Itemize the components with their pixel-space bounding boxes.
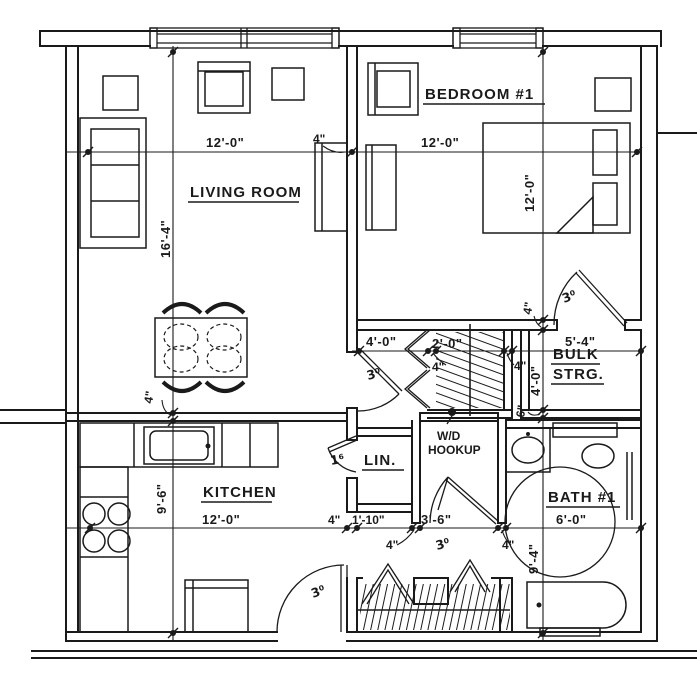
wall-4in-lin-right: 4" bbox=[386, 538, 398, 552]
bed bbox=[483, 123, 630, 233]
nightstand bbox=[595, 78, 631, 111]
bottom-closet-hatch bbox=[357, 584, 510, 630]
kitchen-sink bbox=[144, 427, 214, 464]
wall-4in-bath: 4" bbox=[502, 538, 514, 552]
wall-4in-bedroom: 4" bbox=[520, 301, 536, 316]
room-labels: LIVING ROOM BEDROOM #1 KITCHEN BATH #1 B… bbox=[188, 86, 620, 507]
kitchen-label: KITCHEN bbox=[203, 484, 277, 501]
living-width-dim: 12'-0" bbox=[206, 135, 244, 150]
wall-4in-lin-left: 4" bbox=[328, 513, 340, 527]
hall-door-size: 3⁰ bbox=[365, 365, 383, 383]
bath-height-dim: 9'-4" bbox=[526, 543, 541, 574]
central-closet-bifold bbox=[405, 330, 430, 408]
bathtub bbox=[527, 582, 626, 636]
linen-width-dim: 1'-10" bbox=[352, 513, 385, 527]
armchair-bedroom bbox=[368, 63, 418, 115]
bulk-storage-label-2: STRG. bbox=[553, 366, 604, 383]
linen-door-size: 1⁶ bbox=[329, 451, 346, 468]
wd-label-1: W/D bbox=[437, 429, 461, 443]
toilet bbox=[553, 423, 617, 468]
hall-door bbox=[358, 350, 402, 411]
bedroom-label: BEDROOM #1 bbox=[425, 86, 534, 103]
hall-width-dim: 4'-0" bbox=[366, 334, 397, 349]
bedroom-height-dim: 12'-0" bbox=[522, 174, 537, 212]
wall-4in-closet-left: 4" bbox=[432, 360, 444, 374]
wall-4in-closet-right: 4" bbox=[514, 359, 526, 373]
grab-bar bbox=[627, 452, 632, 520]
bath-width-dim: 6'-0" bbox=[556, 512, 587, 527]
sofa bbox=[80, 118, 146, 248]
living-height-dim: 16'-4" bbox=[158, 220, 173, 258]
wall-6in-bulk: 6" bbox=[513, 404, 529, 419]
floor-plan-drawing: LIVING ROOM BEDROOM #1 KITCHEN BATH #1 B… bbox=[0, 0, 697, 697]
kitchen-height-dim: 9'-6" bbox=[154, 483, 169, 514]
interior-walls bbox=[66, 46, 641, 632]
dresser bbox=[366, 145, 396, 230]
bedroom-door-size: 3⁰ bbox=[560, 287, 578, 306]
entry-door bbox=[277, 565, 347, 632]
wd-label-2: HOOKUP bbox=[428, 443, 481, 457]
wall-4in-kitchen: 4" bbox=[141, 390, 157, 405]
dimension-lines bbox=[66, 46, 641, 641]
living-cabinet bbox=[315, 143, 347, 231]
floor-plan-page: LIVING ROOM BEDROOM #1 KITCHEN BATH #1 B… bbox=[0, 0, 697, 697]
hall2-width-dim: 3'-6" bbox=[421, 512, 452, 527]
wd-door-size: 3⁰ bbox=[434, 535, 452, 553]
side-table-2 bbox=[272, 68, 304, 100]
closet-width-dim: 2'-0" bbox=[432, 336, 463, 351]
living-room-label: LIVING ROOM bbox=[190, 184, 302, 201]
bath-label: BATH #1 bbox=[548, 489, 616, 506]
dining-set bbox=[155, 304, 247, 391]
wall-4in-top: 4" bbox=[313, 132, 325, 146]
dimension-ticks bbox=[83, 47, 646, 638]
kitchen-width-dim: 12'-0" bbox=[202, 512, 240, 527]
bulk-width-dim: 5'-4" bbox=[565, 334, 596, 349]
kitchen-table bbox=[185, 580, 248, 632]
entry-door-size: 3⁰ bbox=[309, 582, 327, 601]
linen-label: LIN. bbox=[364, 452, 396, 469]
armchair-living bbox=[198, 62, 250, 113]
bedroom-width-dim: 12'-0" bbox=[421, 135, 459, 150]
side-table-1 bbox=[103, 76, 138, 110]
bulk-height-dim: 4'-0" bbox=[528, 365, 543, 396]
